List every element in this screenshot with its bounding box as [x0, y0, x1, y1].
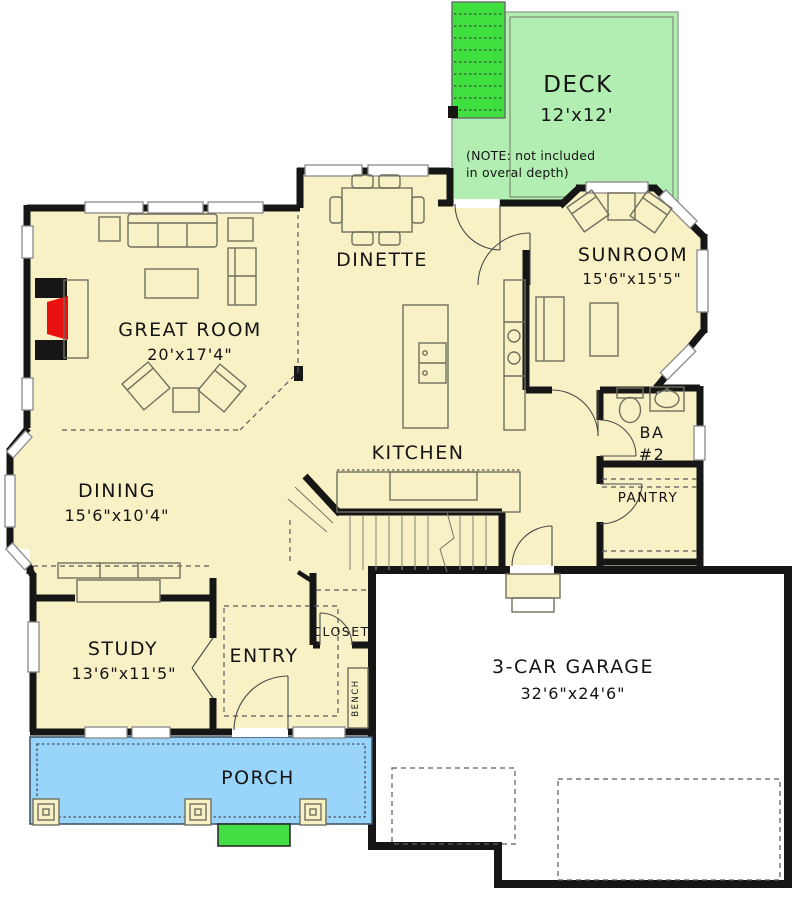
dining-dims: 15'6"x10'4"	[64, 506, 169, 525]
window	[148, 202, 203, 213]
porch-area: PORCH	[30, 737, 372, 846]
window	[368, 165, 428, 176]
garage-walls	[372, 570, 788, 884]
dinette-label: DINETTE	[336, 249, 428, 271]
fireplace-wall-lower	[35, 340, 67, 360]
window	[293, 727, 345, 738]
floor-plan-drawing: DECK 12'x12' (NOTE: not included in over…	[0, 0, 812, 900]
study-dims: 13'6"x11'5"	[71, 664, 176, 683]
window	[132, 727, 170, 738]
bench-label: BENCH	[351, 679, 361, 716]
fireplace-firebox	[47, 296, 68, 340]
sunroom-label: SUNROOM	[578, 244, 688, 266]
window	[305, 165, 362, 176]
deck-dims: 12'x12'	[540, 105, 613, 126]
porch-column	[33, 799, 59, 825]
garage-doorway-opening	[510, 565, 554, 574]
deck-note-line1: (NOTE: not included	[466, 148, 595, 163]
porch-column	[300, 799, 326, 825]
front-stoop	[218, 824, 290, 846]
garage-dims: 32'6"x24'6"	[520, 684, 625, 703]
window	[697, 250, 708, 312]
window	[85, 727, 127, 738]
pantry-label: PANTRY	[618, 490, 679, 506]
front-door-opening	[232, 728, 288, 737]
window	[5, 475, 15, 527]
great-room-dims: 20'x17'4"	[147, 345, 233, 364]
deck-label: DECK	[543, 72, 612, 98]
kitchen-label: KITCHEN	[372, 442, 465, 464]
window	[22, 378, 33, 410]
window	[22, 226, 33, 258]
fireplace-wall-upper	[35, 278, 67, 298]
window	[586, 182, 648, 193]
stair-wall-cap	[448, 106, 458, 118]
garage-area: 3-CAR GARAGE 32'6"x24'6"	[372, 565, 788, 884]
dining-label: DINING	[78, 480, 156, 502]
deck-area: DECK 12'x12' (NOTE: not included in over…	[448, 2, 678, 202]
deck-note-line2: in overal depth)	[466, 165, 569, 180]
bath2-label: BA	[640, 423, 665, 442]
bath2-number: #2	[639, 445, 666, 464]
porch-column	[185, 799, 211, 825]
window	[85, 202, 143, 213]
study-label: STUDY	[88, 638, 158, 660]
sunroom-dims: 15'6"x15'5"	[582, 270, 681, 288]
floor-plan-canvas: DECK 12'x12' (NOTE: not included in over…	[0, 0, 812, 900]
window	[694, 426, 705, 460]
deck-stairs	[448, 2, 505, 118]
closet-label: CLOSET	[312, 624, 370, 639]
entry-label: ENTRY	[230, 645, 299, 667]
garage-label: 3-CAR GARAGE	[492, 656, 654, 678]
window	[28, 622, 39, 672]
garage-entry-step	[506, 574, 560, 598]
porch-label: PORCH	[221, 767, 295, 789]
hall-bath-pantry-slab	[532, 388, 700, 566]
window	[208, 202, 263, 213]
great-room-label: GREAT ROOM	[118, 319, 262, 341]
deck-door-opening	[454, 199, 499, 208]
